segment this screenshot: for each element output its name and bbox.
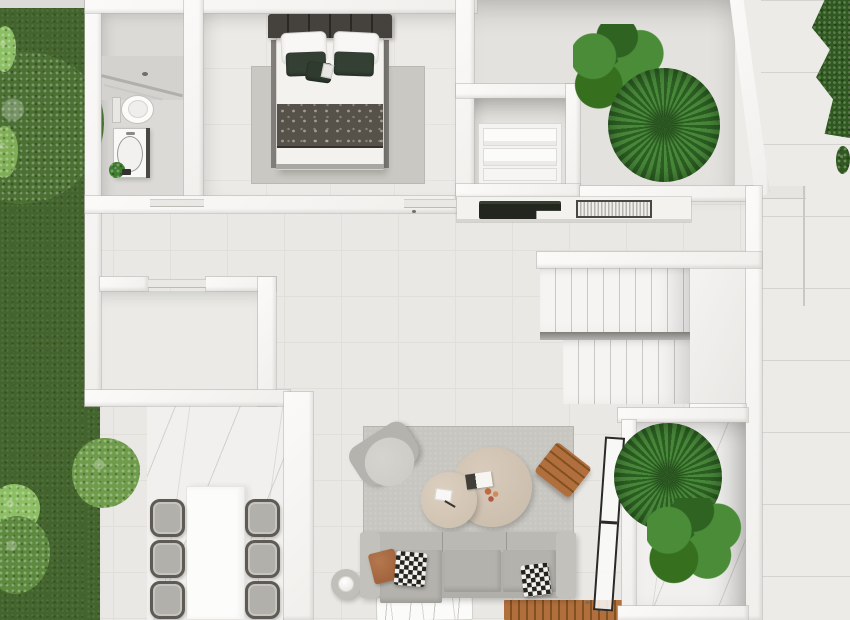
floor-speck xyxy=(585,601,590,604)
dining-chair xyxy=(245,540,280,578)
bed-throw-blanket xyxy=(277,104,383,148)
flower-decor xyxy=(482,486,502,504)
wall-planter-bottom xyxy=(618,606,748,620)
storage-room-floor xyxy=(101,291,258,390)
stairs-landing xyxy=(690,268,746,414)
wall-bath-bedroom xyxy=(184,0,203,203)
candle xyxy=(338,576,354,592)
exterior-wall-top xyxy=(85,0,477,13)
vanity-items xyxy=(122,169,131,175)
stairs-lower-flight xyxy=(563,340,690,404)
fan-palm-top xyxy=(608,68,720,182)
shower-head xyxy=(142,72,148,76)
fiddle-leaf-plant-bottom xyxy=(647,498,743,590)
wall-dining-divider xyxy=(284,392,313,620)
ledge-edge-line xyxy=(803,186,805,306)
toilet-tank xyxy=(112,97,121,123)
sketch-card xyxy=(434,488,453,502)
sofa-seat-cushion-mid xyxy=(444,550,501,592)
side-table xyxy=(331,569,361,599)
dining-chair xyxy=(150,581,185,619)
bed-pillow-green-right xyxy=(334,51,375,76)
wall-bedroom-right xyxy=(456,0,474,213)
dining-chair xyxy=(150,499,185,537)
wall-room-bottom xyxy=(85,390,290,406)
wall-hall-top xyxy=(85,196,457,213)
dining-chair xyxy=(245,581,280,619)
vanity-faucet xyxy=(126,132,135,135)
linen-stack xyxy=(483,128,557,146)
wall-planter-top xyxy=(618,408,748,422)
wall-wardrobe-top xyxy=(456,84,580,98)
toilet-seat xyxy=(128,100,148,118)
wall-wardrobe-bottom xyxy=(456,184,580,198)
dining-chair xyxy=(245,499,280,537)
bed-foot-line xyxy=(276,164,384,169)
linen-stack xyxy=(483,168,557,181)
wall-room-top-left xyxy=(100,277,148,291)
linen-stack xyxy=(483,148,557,166)
floor-plan xyxy=(0,0,850,620)
stairs-upper-flight xyxy=(540,268,690,334)
dining-table xyxy=(186,486,245,620)
wall-room-right xyxy=(258,277,276,406)
sink-rack-unit xyxy=(576,200,652,218)
wall-stairs-top xyxy=(537,252,762,268)
bedroom-sliding-door xyxy=(404,199,456,208)
storage-room-door xyxy=(148,279,206,288)
checkered-pillow-left xyxy=(394,551,428,588)
door-handle xyxy=(412,210,416,213)
stairs-mid-gap xyxy=(540,332,690,340)
vanity-edge xyxy=(146,128,150,178)
sofa-armrest-right xyxy=(556,532,576,598)
dining-chair xyxy=(150,540,185,578)
checkered-pillow-right xyxy=(520,562,552,597)
bathroom-sliding-door xyxy=(150,199,204,207)
